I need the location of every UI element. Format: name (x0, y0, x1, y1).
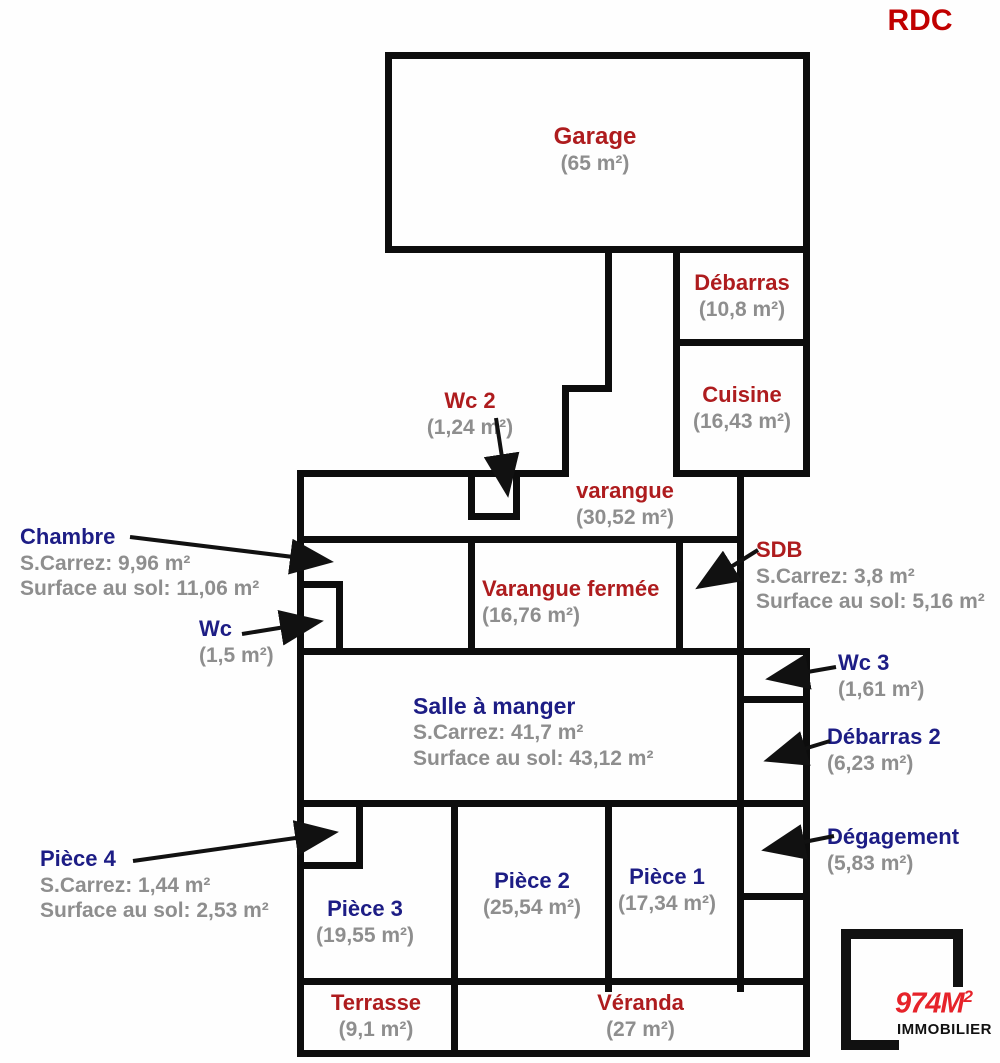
wall (451, 978, 458, 1057)
debarras-label: Débarras (10,8 m²) (662, 270, 822, 322)
room-area: (19,55 m²) (290, 923, 440, 949)
wall (385, 52, 392, 253)
room-name: Pièce 3 (290, 896, 440, 923)
arrow-debarras2 (771, 741, 830, 759)
debarras2-label: Débarras 2 (6,23 m²) (827, 724, 941, 776)
varangue-fermee-label: Varangue fermée (16,76 m²) (482, 576, 659, 628)
room-name: Pièce 4 (40, 846, 269, 873)
garage-label: Garage (65 m²) (465, 122, 725, 177)
wall (803, 648, 810, 1057)
wc2-label: Wc 2 (1,24 m²) (400, 388, 540, 440)
floor-title: RDC (855, 4, 985, 38)
room-carrez: S.Carrez: 3,8 m² (756, 564, 985, 590)
room-area: (25,54 m²) (457, 895, 607, 921)
room-name: Varangue fermée (482, 576, 659, 603)
wall (468, 513, 520, 520)
room-area: (6,23 m²) (827, 751, 941, 777)
wall (673, 339, 810, 346)
degagement-label: Dégagement (5,83 m²) (827, 824, 959, 876)
logo-square-bottom (841, 1040, 899, 1050)
floor-plan: RDC Garage (65 m²) Débarras (10,8 m²) Cu… (0, 0, 1000, 1063)
piece1-label: Pièce 1 (17,34 m²) (592, 864, 742, 916)
room-area: (1,61 m²) (838, 677, 924, 703)
room-floor-area: Surface au sol: 2,53 m² (40, 898, 269, 924)
room-name: Wc (199, 616, 274, 643)
wc-label: Wc (1,5 m²) (199, 616, 274, 668)
room-name: varangue (540, 478, 710, 505)
wall (336, 581, 343, 655)
wall (737, 648, 810, 655)
wall (385, 52, 810, 59)
wall (803, 52, 810, 253)
wall (737, 696, 810, 703)
chambre-label: Chambre S.Carrez: 9,96 m² Surface au sol… (20, 524, 259, 602)
wall (297, 862, 363, 869)
room-name: Débarras 2 (827, 724, 941, 751)
room-name: SDB (756, 537, 985, 564)
room-area: (65 m²) (465, 151, 725, 177)
logo-brand: 974M2 (895, 987, 972, 1021)
room-name: Débarras (662, 270, 822, 297)
wall (385, 246, 810, 253)
room-name: Terrasse (300, 990, 452, 1017)
room-floor-area: Surface au sol: 11,06 m² (20, 576, 259, 602)
wc3-label: Wc 3 (1,61 m²) (838, 650, 924, 702)
agency-logo: 974M2 IMMOBILIER (841, 929, 963, 1050)
room-floor-area: Surface au sol: 43,12 m² (413, 746, 653, 772)
room-area: (1,24 m²) (400, 415, 540, 441)
wall (297, 470, 569, 477)
wall (562, 385, 612, 392)
room-floor-area: Surface au sol: 5,16 m² (756, 589, 985, 615)
wall (737, 893, 810, 900)
wall (562, 385, 569, 477)
salle-a-manger-label: Salle à manger S.Carrez: 41,7 m² Surface… (413, 692, 653, 771)
varangue-label: varangue (30,52 m²) (540, 478, 710, 530)
room-name: Wc 3 (838, 650, 924, 677)
room-area: (27 m²) (563, 1017, 718, 1043)
room-name: Salle à manger (413, 692, 653, 720)
room-area: (1,5 m²) (199, 643, 274, 669)
wall (676, 536, 683, 655)
room-area: (17,34 m²) (592, 891, 742, 917)
room-carrez: S.Carrez: 1,44 m² (40, 873, 269, 899)
room-area: (30,52 m²) (540, 505, 710, 531)
wall (468, 536, 475, 655)
logo-square-right (953, 929, 963, 987)
piece4-label: Pièce 4 S.Carrez: 1,44 m² Surface au sol… (40, 846, 269, 924)
wall (297, 648, 744, 655)
room-carrez: S.Carrez: 9,96 m² (20, 551, 259, 577)
room-name: Pièce 2 (457, 868, 607, 895)
cuisine-label: Cuisine (16,43 m²) (662, 382, 822, 434)
arrow-sdb (702, 550, 758, 585)
terrasse-label: Terrasse (9,1 m²) (300, 990, 452, 1042)
wall (297, 978, 810, 985)
piece3-label: Pièce 3 (19,55 m²) (290, 896, 440, 948)
arrow-degagement (769, 836, 834, 849)
room-name: Chambre (20, 524, 259, 551)
room-name: Wc 2 (400, 388, 540, 415)
wall (605, 253, 612, 392)
logo-square-top (841, 929, 963, 939)
room-area: (10,8 m²) (662, 297, 822, 323)
logo-subtitle: IMMOBILIER (897, 1021, 992, 1038)
room-name: Garage (465, 122, 725, 151)
wall (356, 807, 363, 869)
wall (297, 470, 304, 1057)
piece2-label: Pièce 2 (25,54 m²) (457, 868, 607, 920)
room-name: Cuisine (662, 382, 822, 409)
room-name: Pièce 1 (592, 864, 742, 891)
logo-square-left (841, 929, 851, 1050)
wall (297, 1050, 810, 1057)
sdb-label: SDB S.Carrez: 3,8 m² Surface au sol: 5,1… (756, 537, 985, 615)
room-area: (16,76 m²) (482, 603, 659, 629)
room-area: (9,1 m²) (300, 1017, 452, 1043)
room-area: (16,43 m²) (662, 409, 822, 435)
wall (297, 800, 810, 807)
room-name: Véranda (563, 990, 718, 1017)
veranda-label: Véranda (27 m²) (563, 990, 718, 1042)
room-carrez: S.Carrez: 41,7 m² (413, 720, 653, 746)
room-name: Dégagement (827, 824, 959, 851)
room-area: (5,83 m²) (827, 851, 959, 877)
